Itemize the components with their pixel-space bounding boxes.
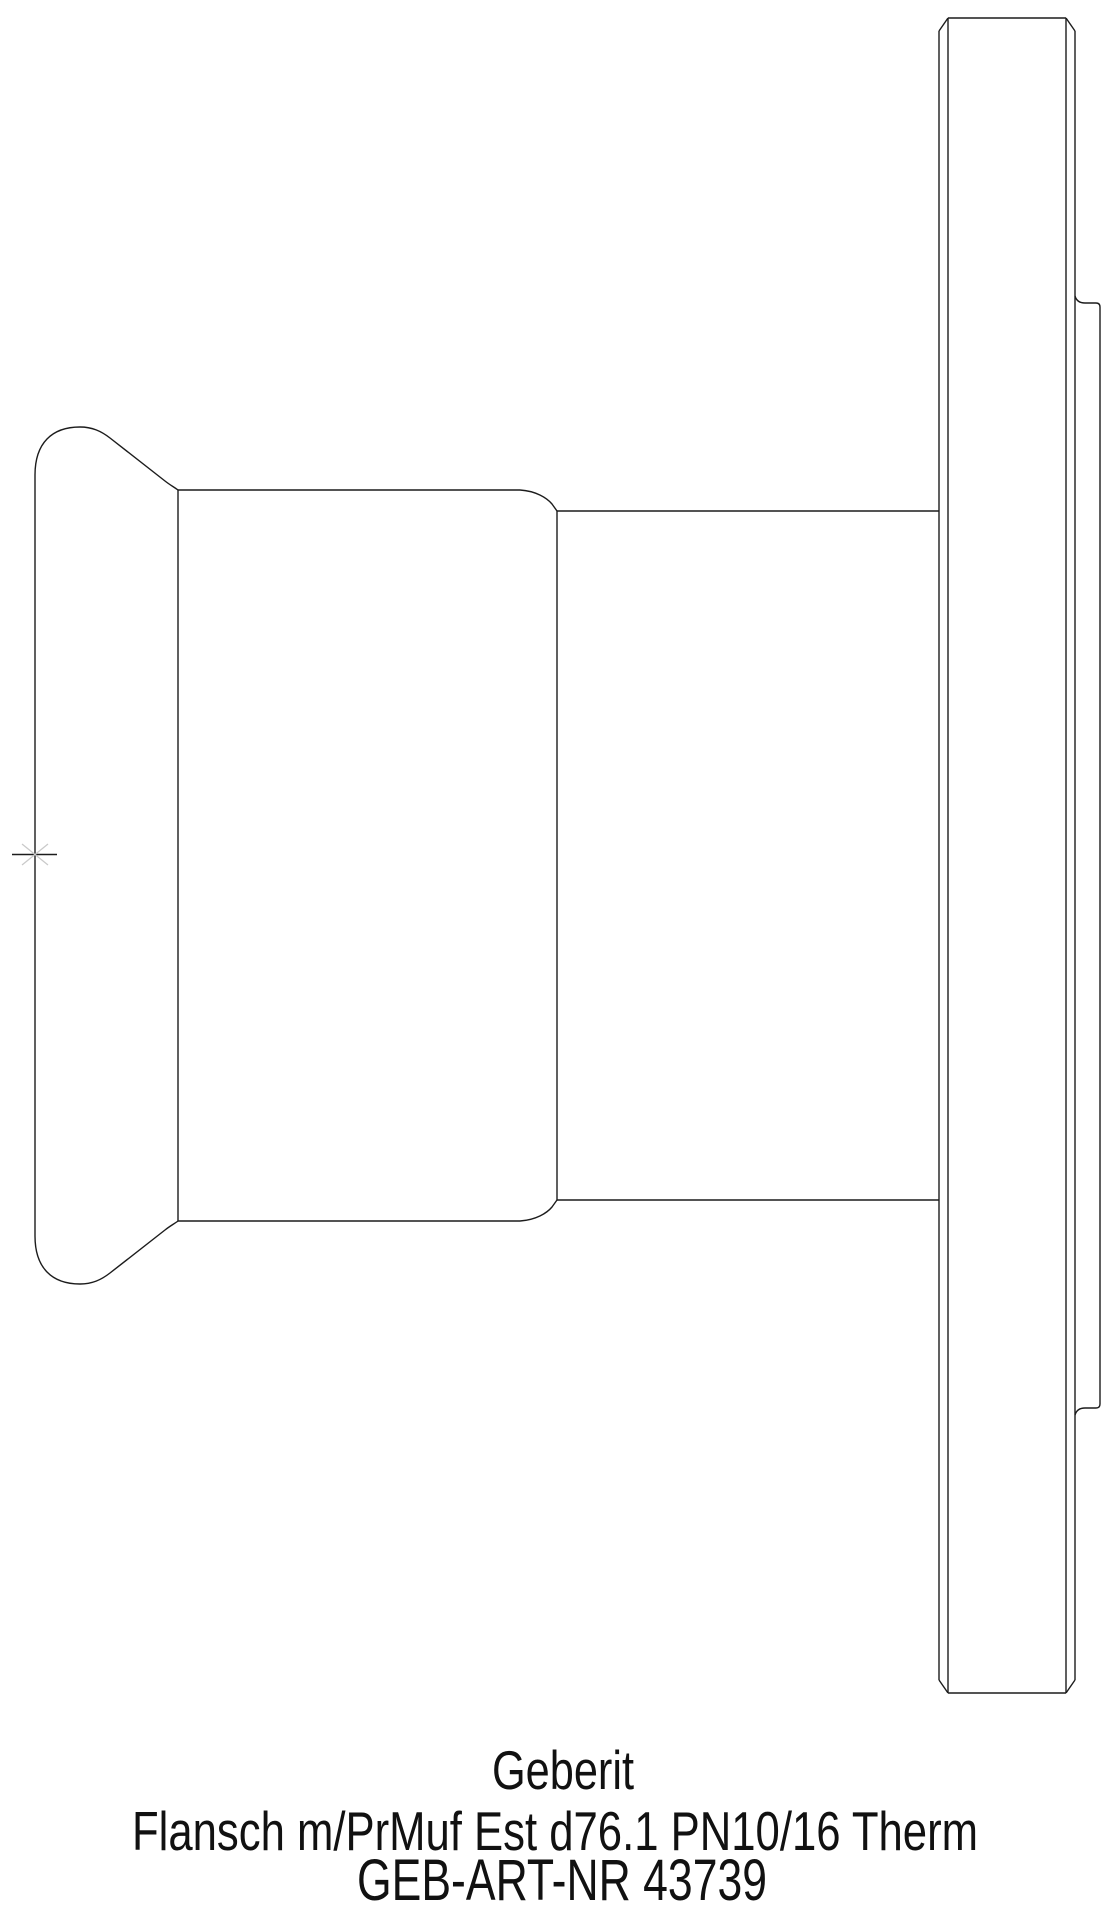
flange-chamfer-top-left	[939, 18, 948, 31]
muff-shoulder-bottom	[520, 1200, 557, 1221]
fitting-outline-group	[12, 18, 1100, 1693]
flange-chamfer-bottom-right	[1066, 1680, 1075, 1693]
technical-drawing: Geberit Flansch m/PrMuf Est d76.1 PN10/1…	[0, 0, 1113, 1920]
muff-shoulder-top	[520, 490, 557, 511]
socket-end-bottom-outline	[35, 1221, 178, 1284]
drawing-page: Geberit Flansch m/PrMuf Est d76.1 PN10/1…	[0, 0, 1113, 1920]
flange-chamfer-top-right	[1066, 18, 1075, 31]
flange-collar-outline	[1075, 296, 1100, 1415]
article-number-label: GEB-ART-NR 43739	[357, 1848, 767, 1913]
brand-label: Geberit	[492, 1739, 634, 1801]
label-block: Geberit Flansch m/PrMuf Est d76.1 PN10/1…	[132, 1739, 978, 1913]
socket-end-top-outline	[35, 427, 178, 490]
flange-chamfer-bottom-left	[939, 1680, 948, 1693]
